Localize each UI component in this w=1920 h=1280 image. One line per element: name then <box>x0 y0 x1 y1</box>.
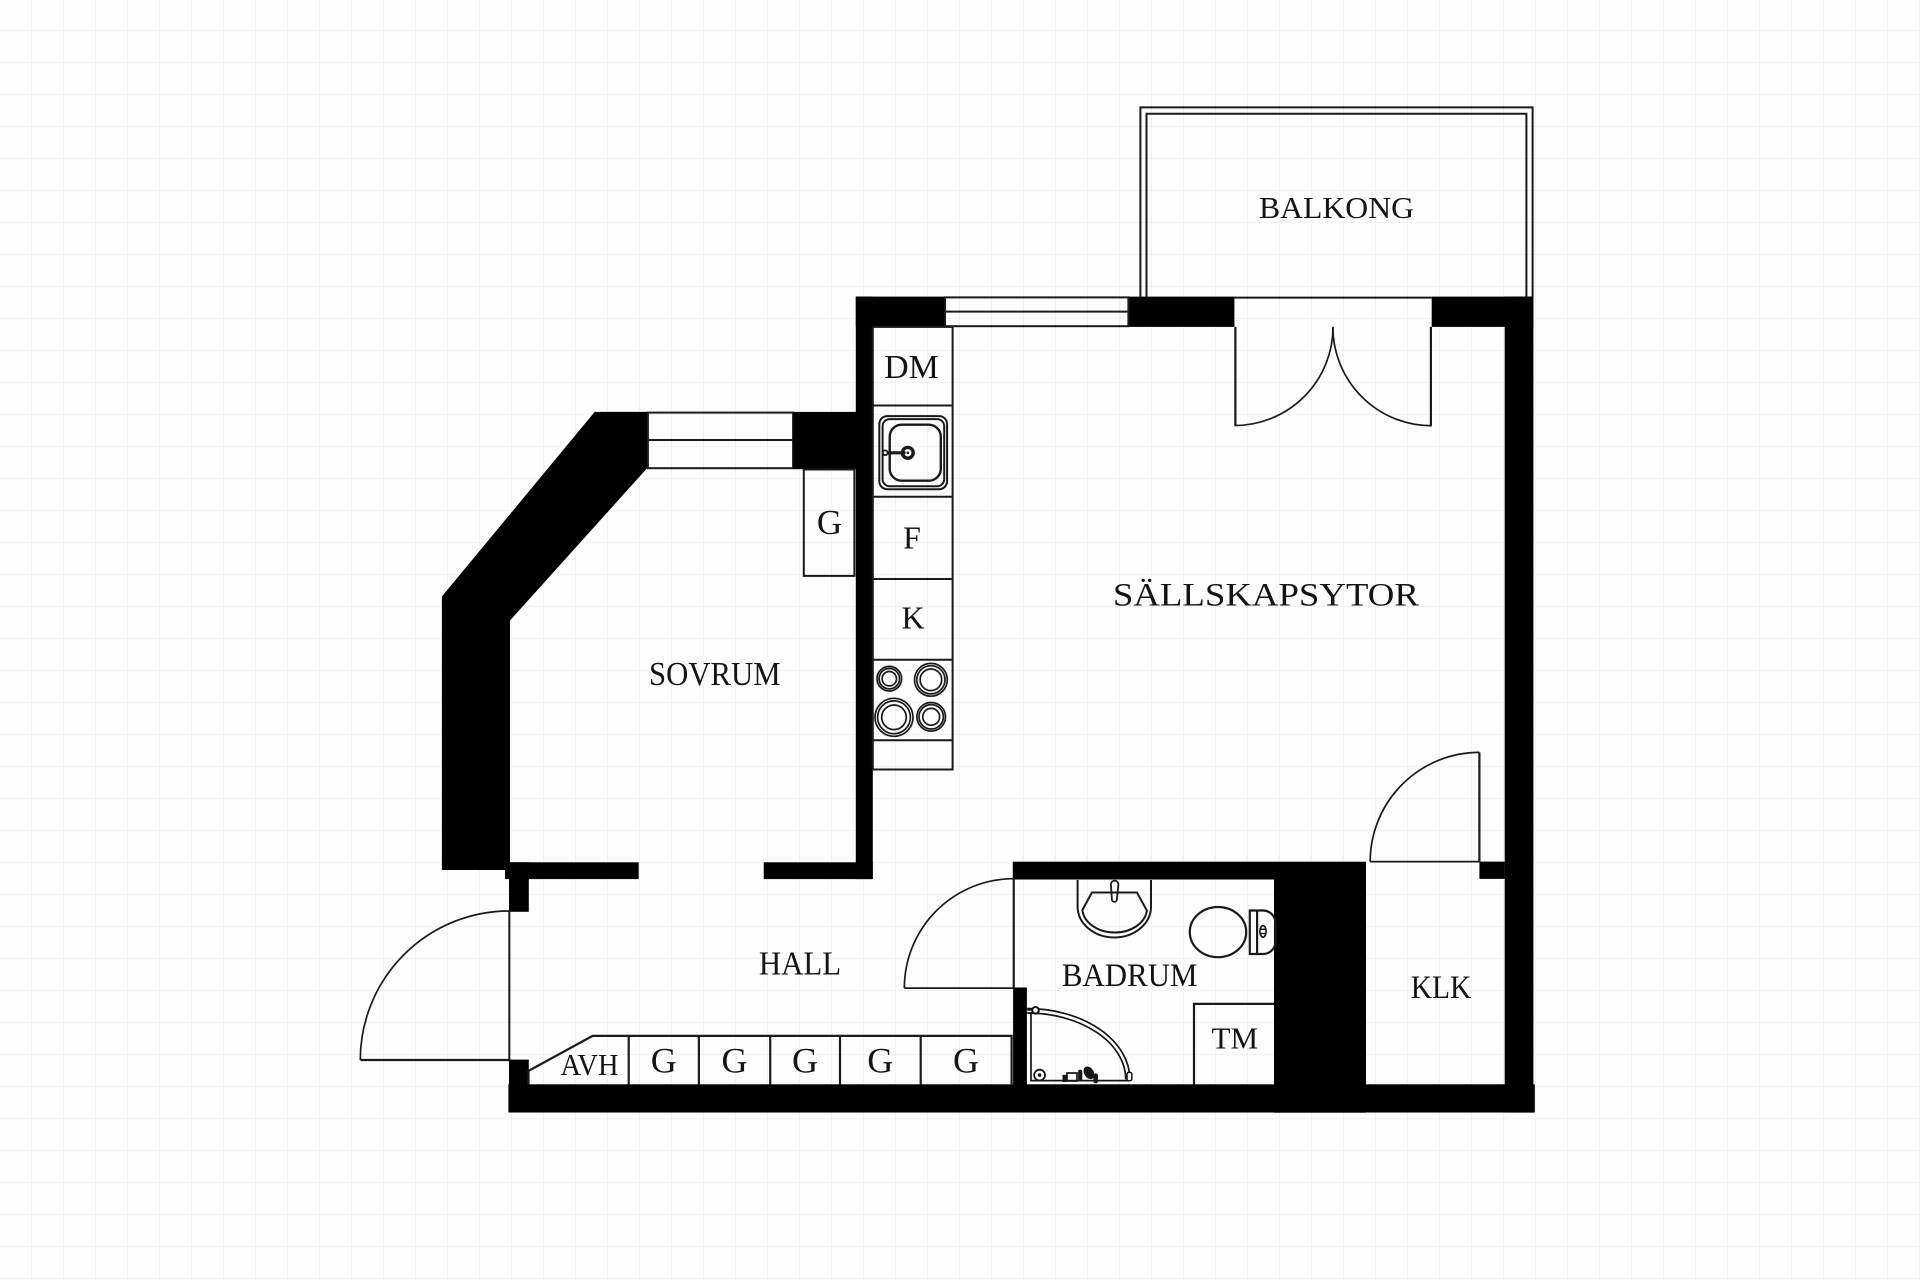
svg-text:KLK: KLK <box>1411 970 1472 1006</box>
svg-text:G: G <box>867 1041 893 1081</box>
svg-text:SÄLLSKAPSYTOR: SÄLLSKAPSYTOR <box>1113 578 1419 614</box>
svg-text:HALL: HALL <box>759 945 841 982</box>
svg-text:BALKONG: BALKONG <box>1259 190 1414 225</box>
svg-text:BADRUM: BADRUM <box>1062 958 1198 994</box>
svg-text:G: G <box>817 503 842 542</box>
svg-text:G: G <box>953 1041 979 1081</box>
svg-text:TM: TM <box>1212 1021 1259 1056</box>
svg-text:DM: DM <box>884 349 939 386</box>
svg-text:G: G <box>651 1041 677 1081</box>
svg-text:G: G <box>722 1041 748 1081</box>
svg-text:F: F <box>903 520 921 556</box>
svg-text:SOVRUM: SOVRUM <box>649 656 781 693</box>
svg-text:K: K <box>901 599 924 635</box>
svg-text:AVH: AVH <box>561 1047 619 1082</box>
svg-text:G: G <box>792 1041 818 1081</box>
